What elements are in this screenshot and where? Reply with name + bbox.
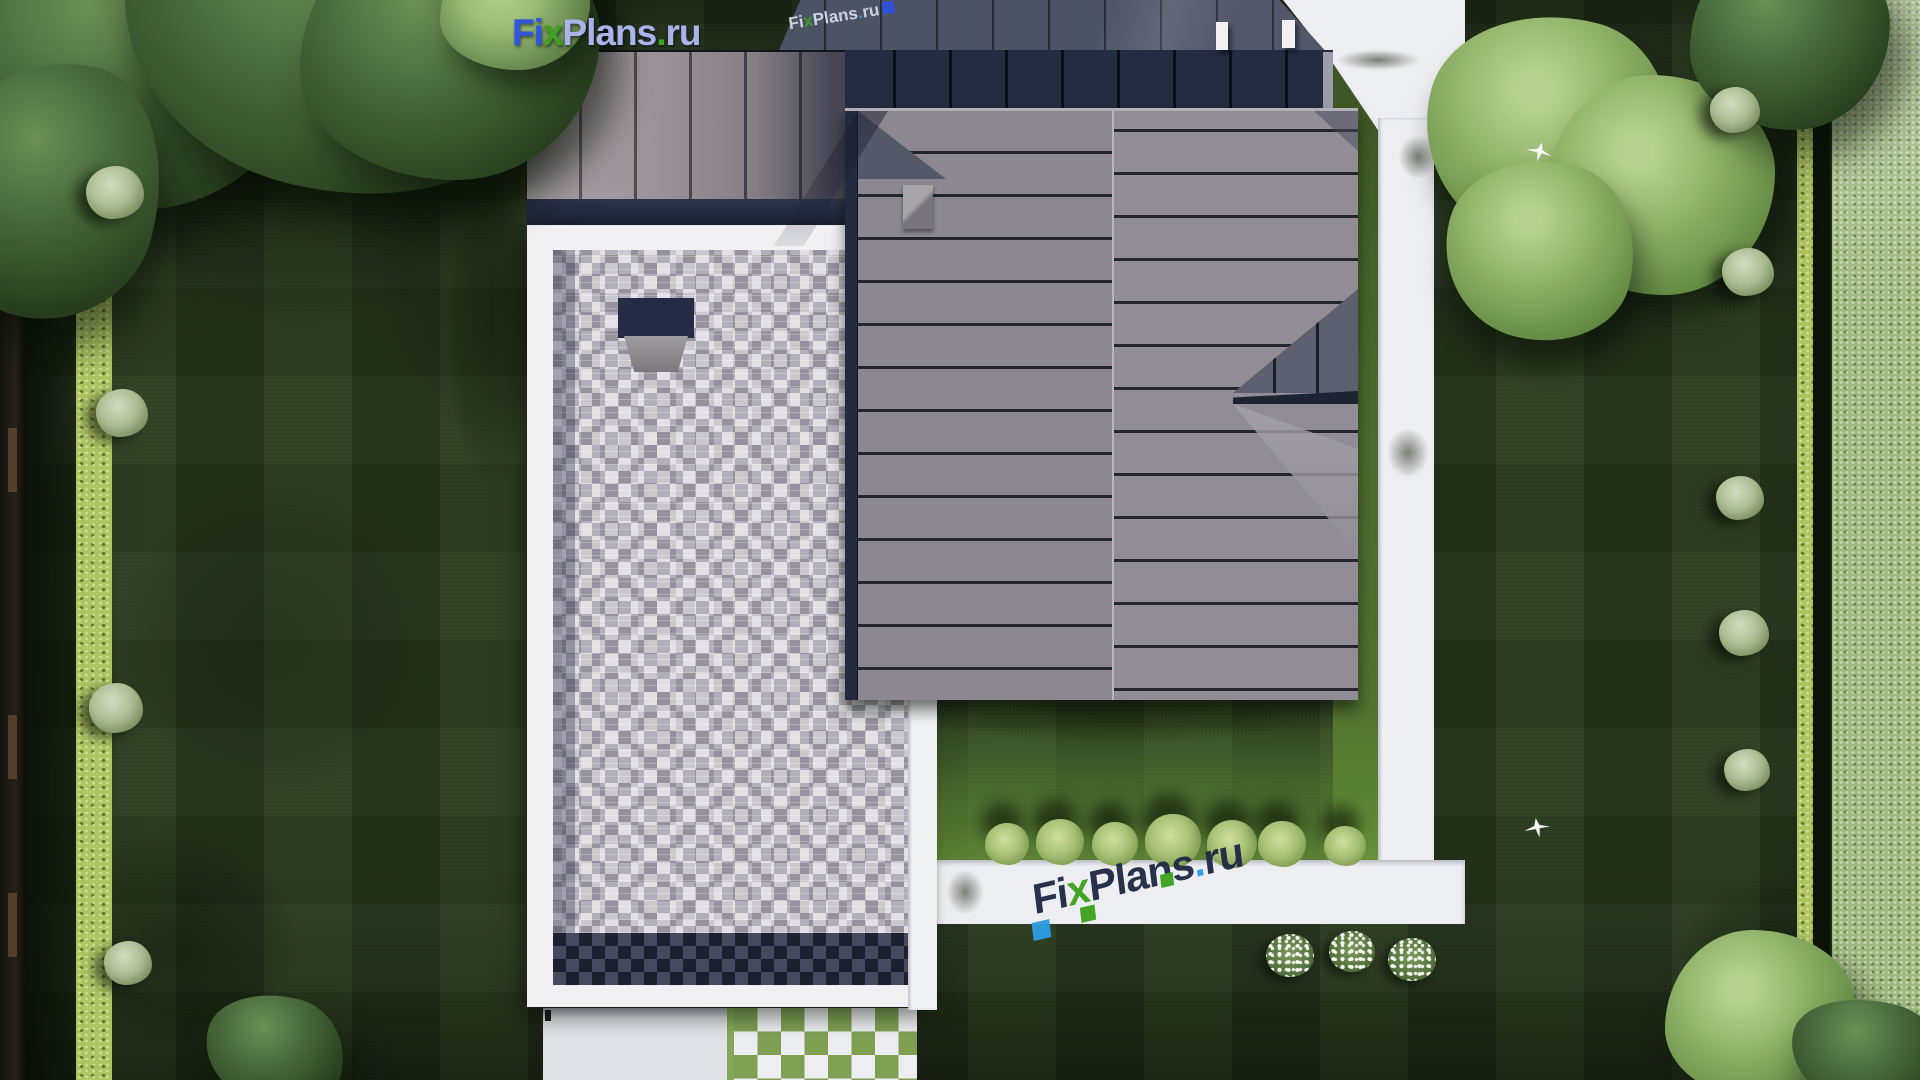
brand-text: ru: [861, 0, 881, 22]
hip-roof: [845, 108, 1358, 700]
scene: FixPlans.ru FixPlans.ru FixPlans.ru: [0, 0, 1920, 1080]
watermark-fixplans-top: FixPlans.ru: [512, 12, 700, 54]
shrub: [86, 166, 144, 219]
paver-shadow-band: [553, 933, 908, 985]
navy-seam-roof-band: [840, 50, 1333, 112]
ornamental-tree: [1036, 819, 1084, 865]
ornamental-tree: [1324, 826, 1366, 866]
stepping-stones: [727, 1008, 917, 1080]
brand-accent-square: [881, 1, 895, 15]
fence-gap-right: [1813, 0, 1830, 1080]
shrub: [104, 941, 152, 985]
shadow-on-path: [940, 862, 990, 922]
hip-roof-left-edge: [845, 111, 858, 700]
fence-post: [8, 715, 17, 779]
shrub: [96, 389, 148, 437]
shrub: [1722, 248, 1774, 296]
fence-post: [8, 428, 17, 492]
patio-slab: [543, 1008, 727, 1080]
hedge-right: [1797, 0, 1813, 1080]
shrub: [1710, 87, 1760, 133]
walkway-vertical: [1378, 118, 1434, 862]
brand-text: Fi: [512, 12, 543, 54]
brand-text: ru: [665, 12, 700, 54]
brand-text: Plans: [562, 12, 656, 54]
shrub: [1719, 610, 1769, 656]
shrub: [89, 683, 143, 733]
brand-accent-square: [1032, 919, 1052, 941]
skylight-dome: [624, 336, 688, 372]
shrub: [1724, 749, 1770, 791]
ornamental-tree: [985, 823, 1029, 865]
shrub: [1716, 476, 1764, 520]
patio-post: [545, 1010, 551, 1021]
paver-shade: [553, 250, 575, 985]
flower-bush: [1388, 938, 1436, 981]
bird: [1522, 815, 1552, 841]
flower-bush: [1266, 934, 1314, 977]
brand-text: x: [543, 12, 563, 54]
fence-post: [8, 893, 17, 957]
roof-vent: [903, 185, 933, 229]
navy-band-edge: [1323, 52, 1333, 112]
chimney: [1216, 22, 1228, 50]
brand-text: Fi: [1030, 868, 1070, 924]
shadow-on-path: [1380, 420, 1436, 486]
chimney: [1282, 20, 1295, 48]
flower-bush: [1329, 931, 1375, 972]
skylight-opening: [618, 298, 694, 338]
brand-text: ru: [1201, 828, 1246, 885]
ground-shadow: [60, 430, 490, 850]
ornamental-tree: [1258, 821, 1306, 867]
house-right-wall: [908, 695, 937, 1010]
shadow-on-path: [1322, 46, 1434, 74]
neighbor-lawn: [1830, 0, 1920, 1080]
